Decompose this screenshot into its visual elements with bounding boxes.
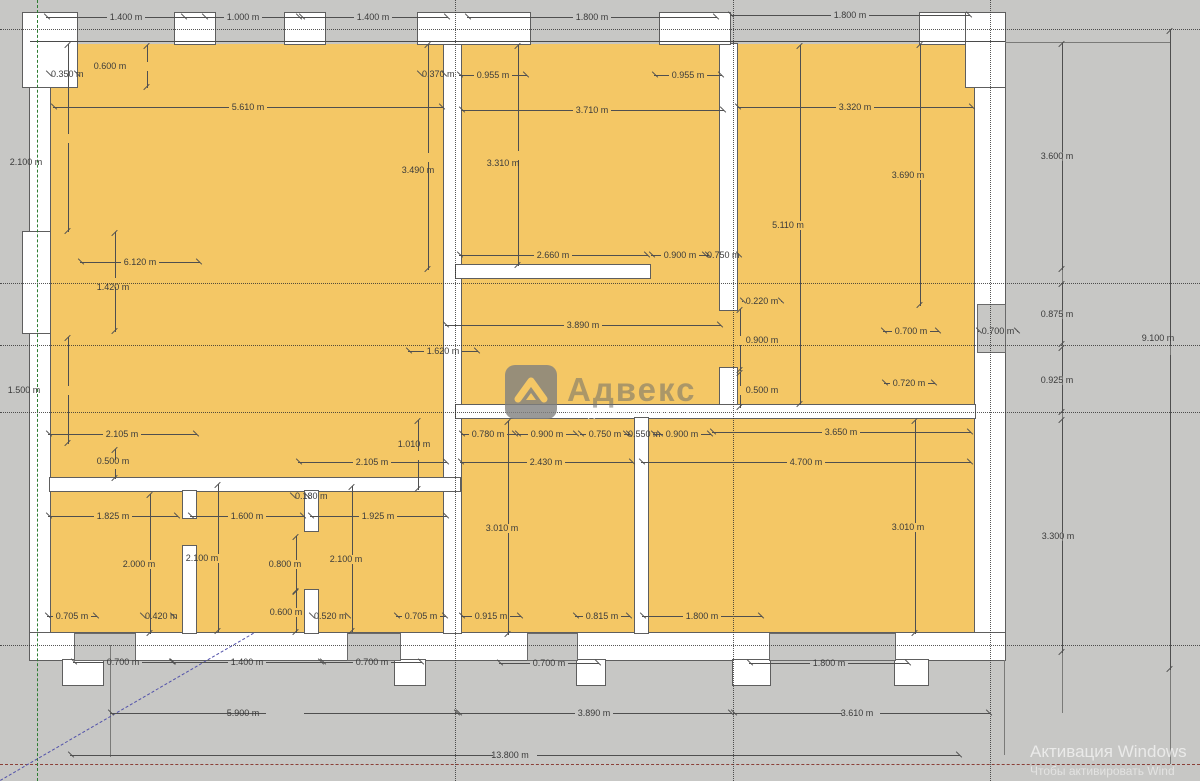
guide-line [0,764,1200,765]
wall-segment [635,418,648,633]
wall-segment [966,13,1005,87]
dimension: 3.890 m [456,708,732,718]
dimension: 9.100 m [1165,30,1175,670]
wall-segment [30,42,50,660]
dimension-extension-line [1005,42,1170,43]
dimension-label: 3.610 m [838,709,877,718]
wall-opening [75,634,135,660]
wall-segment [305,590,318,633]
dimension: 3.610 m [733,708,990,718]
wall-segment [23,13,77,87]
dimension-label: 3.600 m [1038,152,1077,161]
wall-segment [285,13,325,44]
dimension-extension-line [110,645,111,757]
dimension-label: 5.900 m [224,709,263,718]
dimension: 0.925 m [1057,347,1067,413]
floorplan-canvas: 1.400 m1.000 m1.400 m1.800 m1.800 m0.350… [0,0,1200,781]
wall-segment [183,546,196,633]
dimension: 13.800 m [70,750,960,760]
dimension-extension-line [1170,29,1171,764]
dimension-label: 0.925 m [1038,376,1077,385]
dimension: 5.900 m [110,708,460,718]
dimension-label: 3.890 m [575,709,614,718]
dimension-label: 1.400 m [354,13,393,22]
dimension: 3.300 m [1057,419,1067,653]
wall-opening [528,634,577,660]
dimension: 3.600 m [1057,43,1067,270]
wall-segment [456,265,650,278]
dimension-label: 0.875 m [1038,310,1077,319]
wall-segment [50,478,460,491]
dimension: 0.875 m [1057,283,1067,345]
dimension-extension-line [1062,42,1063,713]
wall-segment [895,660,928,685]
dimension-label: 1.000 m [224,13,263,22]
wall-segment [920,13,966,44]
wall-segment [418,13,530,44]
wall-segment [456,405,975,418]
wall-segment [444,44,461,633]
wall-segment [733,660,770,685]
wall-segment [23,232,50,333]
wall-segment [577,660,605,685]
windows-activation-watermark: Активация Windows Чтобы активировать Win… [1030,742,1187,778]
wall-opening [348,634,400,660]
wall-opening [978,305,1005,352]
wall-segment [305,491,318,531]
windows-activation-subtitle: Чтобы активировать Wind [1030,764,1187,778]
wall-opening [770,634,895,660]
dimension-label: 1.800 m [573,13,612,22]
wall-segment [183,491,196,518]
dimension-extension-line [1004,660,1005,755]
windows-activation-title: Активация Windows [1030,742,1187,762]
dimension-label: 3.300 m [1039,532,1078,541]
dimension-label: 13.800 m [488,751,532,760]
dimension-label: 1.400 m [107,13,146,22]
wall-segment [63,660,103,685]
wall-segment [175,13,215,44]
dimension-label: 1.800 m [831,11,870,20]
wall-segment [720,44,737,310]
wall-segment [660,13,730,44]
room-fill [50,44,975,633]
dimension-label: 9.100 m [1139,334,1178,343]
wall-segment [395,660,425,685]
